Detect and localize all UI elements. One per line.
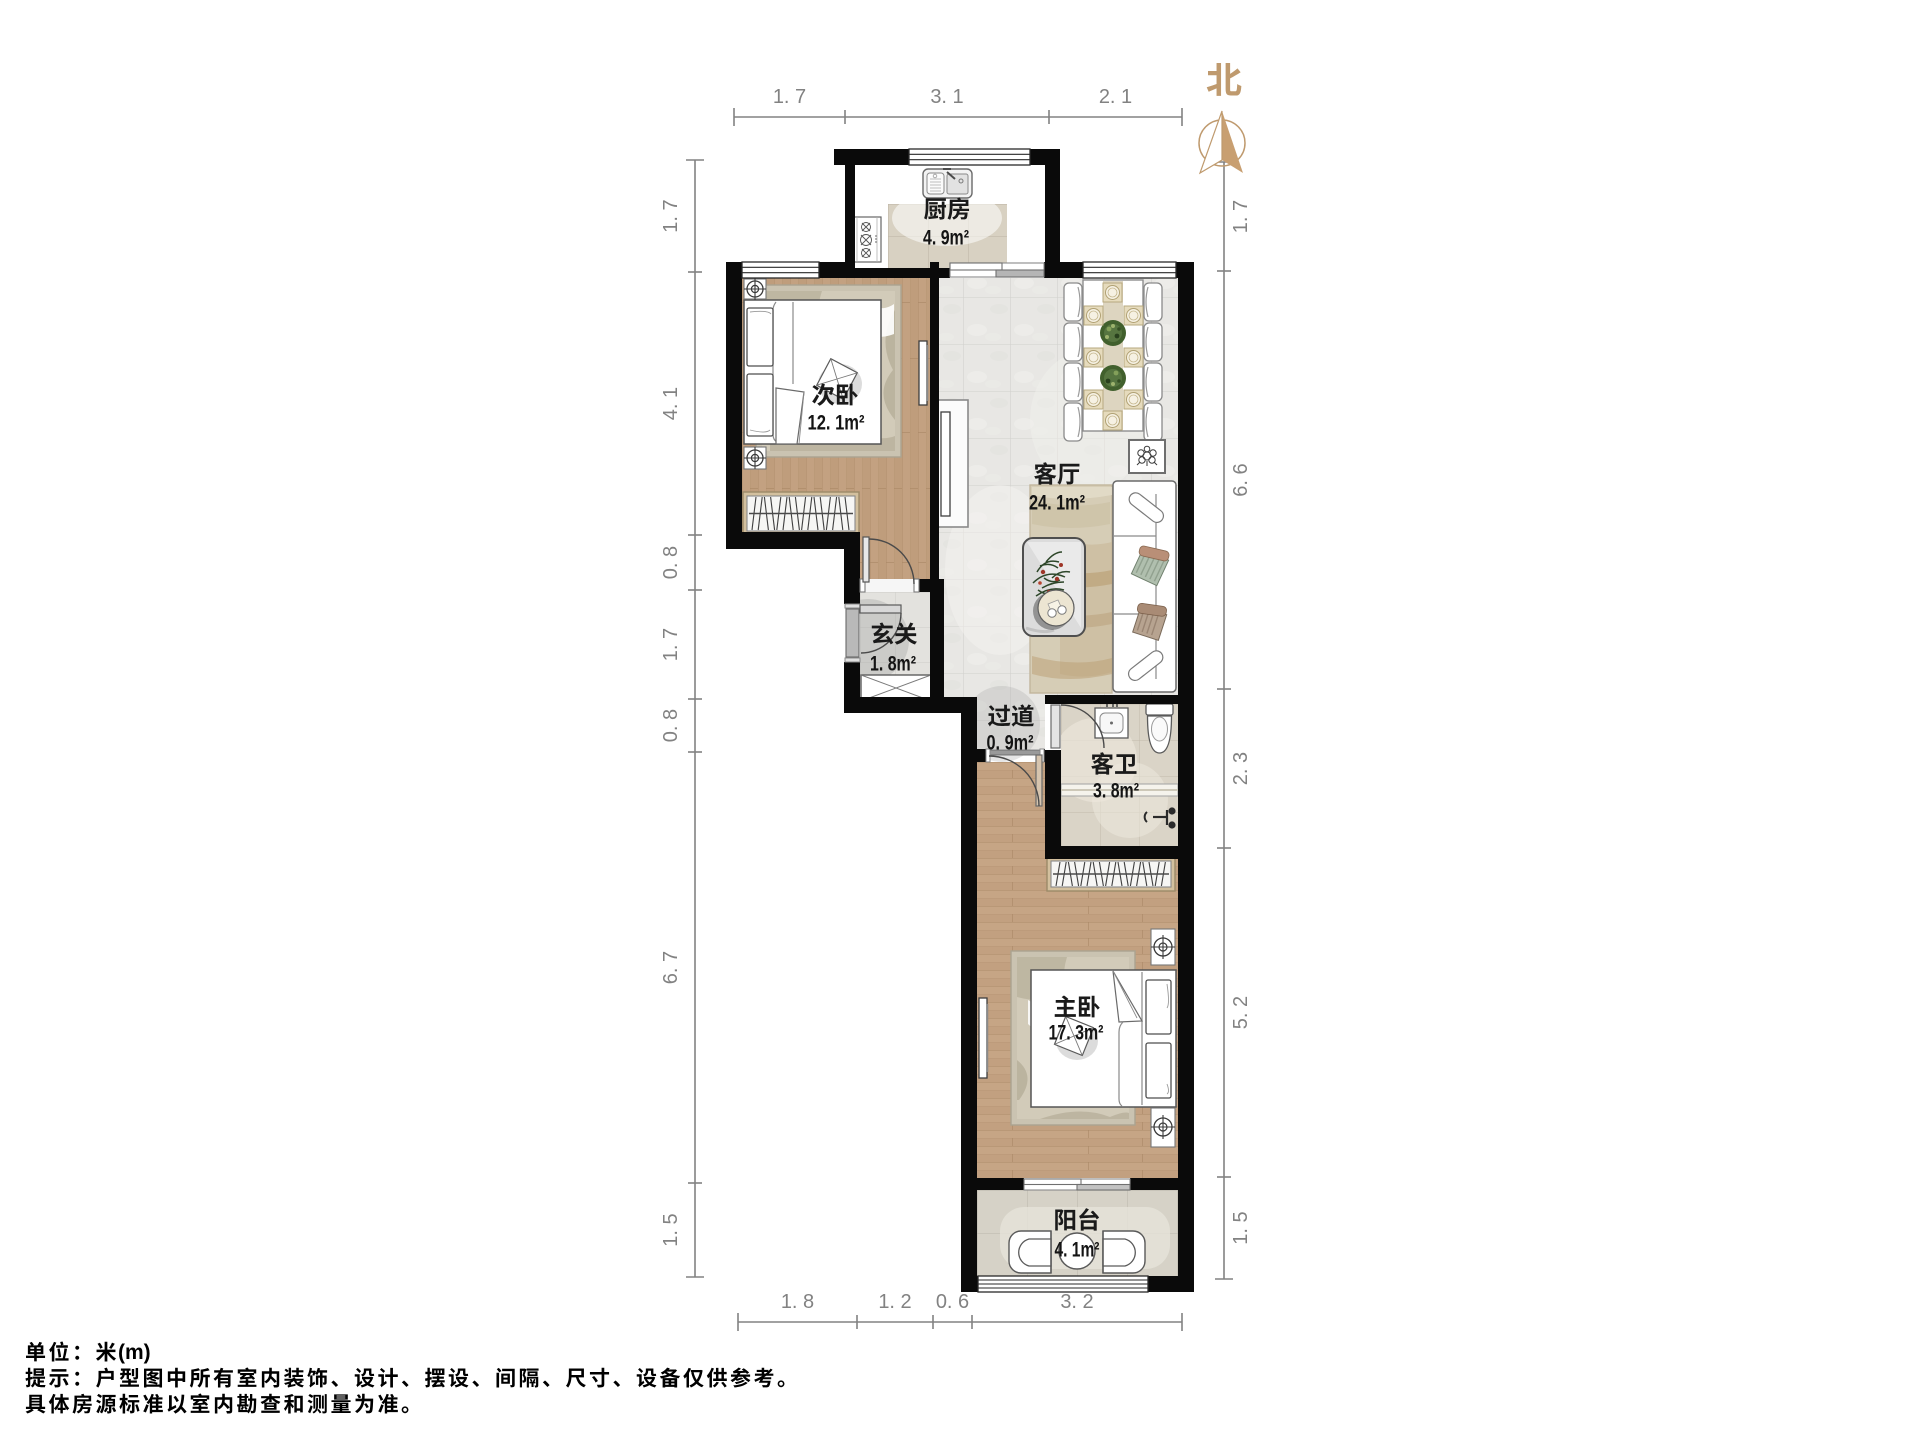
svg-text:0. 6: 0. 6 (936, 1291, 969, 1313)
svg-text:6. 6: 6. 6 (1230, 463, 1252, 496)
svg-text:4. 9m²: 4. 9m² (923, 227, 969, 250)
svg-text:12. 1m²: 12. 1m² (808, 412, 865, 435)
svg-text:2. 1: 2. 1 (1099, 86, 1132, 108)
svg-text:4. 1m²: 4. 1m² (1055, 1239, 1100, 1262)
svg-text:1. 7: 1. 7 (660, 628, 682, 661)
svg-text:1. 7: 1. 7 (660, 199, 682, 232)
svg-text:1. 7: 1. 7 (773, 86, 806, 108)
svg-text:1. 8m²: 1. 8m² (870, 653, 916, 676)
svg-text:1. 5: 1. 5 (1230, 1211, 1252, 1244)
svg-text:1. 5: 1. 5 (660, 1213, 682, 1246)
svg-text:17. 3m²: 17. 3m² (1049, 1022, 1104, 1045)
svg-text:0. 8: 0. 8 (660, 546, 682, 579)
svg-text:1. 8: 1. 8 (781, 1291, 814, 1313)
svg-text:(m): (m) (118, 1341, 151, 1364)
svg-text:1. 7: 1. 7 (1230, 200, 1252, 233)
svg-text:0. 9m²: 0. 9m² (987, 732, 1034, 755)
svg-text:4. 1: 4. 1 (660, 387, 682, 420)
svg-text:6. 7: 6. 7 (660, 951, 682, 984)
svg-text:1. 2: 1. 2 (878, 1291, 911, 1313)
svg-text:24. 1m²: 24. 1m² (1029, 492, 1085, 515)
svg-text:3. 2: 3. 2 (1060, 1291, 1093, 1313)
svg-text:2. 3: 2. 3 (1230, 752, 1252, 785)
svg-text:3. 8m²: 3. 8m² (1093, 780, 1139, 803)
svg-text:5. 2: 5. 2 (1230, 996, 1252, 1029)
svg-text:0. 8: 0. 8 (660, 709, 682, 742)
svg-text:3. 1: 3. 1 (930, 86, 963, 108)
